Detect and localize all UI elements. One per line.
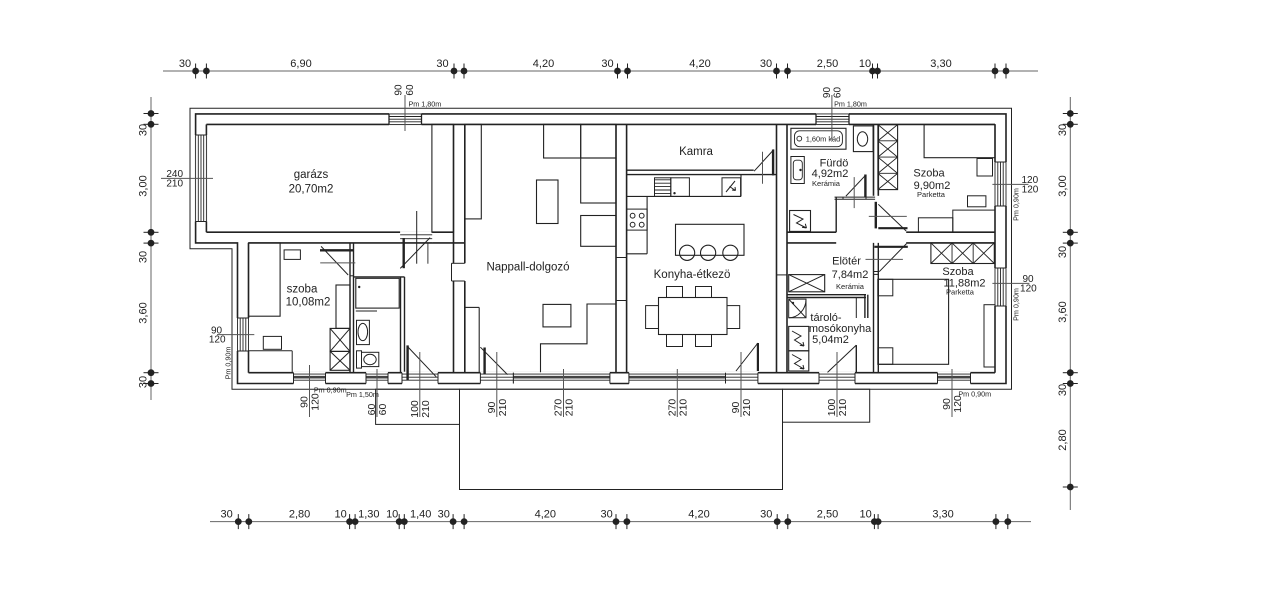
svg-text:Pm 1,50m: Pm 1,50m [346, 390, 379, 399]
svg-text:Szoba: Szoba [913, 167, 945, 179]
svg-text:Kerámia: Kerámia [836, 282, 865, 291]
svg-text:1,40: 1,40 [410, 509, 431, 521]
svg-text:60: 60 [377, 404, 389, 416]
svg-text:30: 30 [138, 376, 150, 388]
svg-text:Parketta: Parketta [917, 190, 946, 199]
svg-text:30: 30 [1057, 124, 1069, 136]
svg-text:2,80: 2,80 [1057, 429, 1069, 450]
svg-text:210: 210 [166, 179, 183, 190]
svg-text:szoba: szoba [287, 284, 318, 296]
svg-text:210: 210 [497, 399, 509, 417]
svg-text:210: 210 [741, 399, 753, 417]
svg-text:Parketta: Parketta [946, 288, 975, 297]
svg-text:4,20: 4,20 [535, 509, 556, 521]
svg-text:3,60: 3,60 [138, 302, 150, 323]
svg-text:4,20: 4,20 [533, 58, 554, 70]
svg-text:2,80: 2,80 [289, 509, 310, 521]
svg-text:30: 30 [1057, 246, 1069, 258]
svg-text:garázs: garázs [294, 169, 329, 181]
svg-text:10: 10 [859, 58, 871, 70]
svg-text:60: 60 [405, 84, 416, 96]
svg-text:Pm 1,80m: Pm 1,80m [834, 100, 867, 109]
svg-text:210: 210 [677, 399, 689, 417]
svg-text:4,20: 4,20 [688, 509, 709, 521]
svg-text:30: 30 [760, 509, 772, 521]
svg-text:Kamra: Kamra [679, 146, 713, 158]
svg-text:120: 120 [310, 393, 322, 411]
svg-text:3,00: 3,00 [138, 175, 150, 196]
svg-text:120: 120 [209, 335, 226, 346]
svg-text:10,08m2: 10,08m2 [286, 297, 331, 309]
svg-text:30: 30 [760, 58, 772, 70]
svg-text:Pm 0,90m: Pm 0,90m [224, 347, 233, 380]
svg-text:20,70m2: 20,70m2 [289, 184, 334, 196]
svg-text:30: 30 [601, 58, 613, 70]
svg-text:3,00: 3,00 [1057, 175, 1069, 196]
svg-text:1,60m kád: 1,60m kád [806, 135, 841, 144]
svg-text:30: 30 [436, 58, 448, 70]
svg-text:10: 10 [334, 509, 346, 521]
svg-text:2,50: 2,50 [817, 58, 838, 70]
svg-text:Pm 1,80m: Pm 1,80m [409, 100, 442, 109]
svg-text:90: 90 [394, 84, 405, 96]
svg-text:30: 30 [220, 509, 232, 521]
svg-text:Pm 0,90m: Pm 0,90m [958, 389, 991, 398]
svg-text:Elötér: Elötér [832, 256, 861, 268]
svg-text:Konyha-étkezö: Konyha-étkezö [654, 269, 731, 281]
svg-text:60: 60 [833, 87, 844, 99]
svg-text:3,30: 3,30 [930, 58, 951, 70]
svg-text:30: 30 [179, 58, 191, 70]
svg-text:210: 210 [564, 399, 576, 417]
svg-text:Pm 0,90m: Pm 0,90m [1011, 288, 1020, 321]
svg-text:120: 120 [1020, 283, 1037, 294]
svg-text:3,60: 3,60 [1057, 301, 1069, 322]
svg-text:Pm 0,90m: Pm 0,90m [1011, 188, 1020, 221]
svg-text:30: 30 [1057, 384, 1069, 396]
svg-text:Pm 0,90m: Pm 0,90m [314, 386, 347, 395]
svg-text:210: 210 [837, 399, 849, 417]
svg-text:4,20: 4,20 [689, 58, 710, 70]
svg-text:5,04m2: 5,04m2 [812, 334, 849, 346]
svg-text:30: 30 [138, 124, 150, 136]
svg-text:3,30: 3,30 [932, 509, 953, 521]
svg-text:1,30: 1,30 [358, 509, 379, 521]
svg-text:90: 90 [822, 87, 833, 99]
svg-text:10: 10 [386, 509, 398, 521]
svg-text:6,90: 6,90 [290, 58, 311, 70]
svg-text:30: 30 [138, 251, 150, 263]
svg-text:210: 210 [420, 400, 432, 418]
svg-text:Kerámia: Kerámia [812, 179, 841, 188]
svg-text:Nappall-dolgozó: Nappall-dolgozó [486, 262, 569, 274]
svg-text:30: 30 [600, 509, 612, 521]
svg-text:2,50: 2,50 [817, 509, 838, 521]
svg-text:120: 120 [1022, 184, 1039, 195]
svg-text:7,84m2: 7,84m2 [832, 269, 869, 281]
svg-text:Szoba: Szoba [942, 266, 974, 278]
svg-text:10: 10 [859, 509, 871, 521]
svg-text:30: 30 [438, 509, 450, 521]
